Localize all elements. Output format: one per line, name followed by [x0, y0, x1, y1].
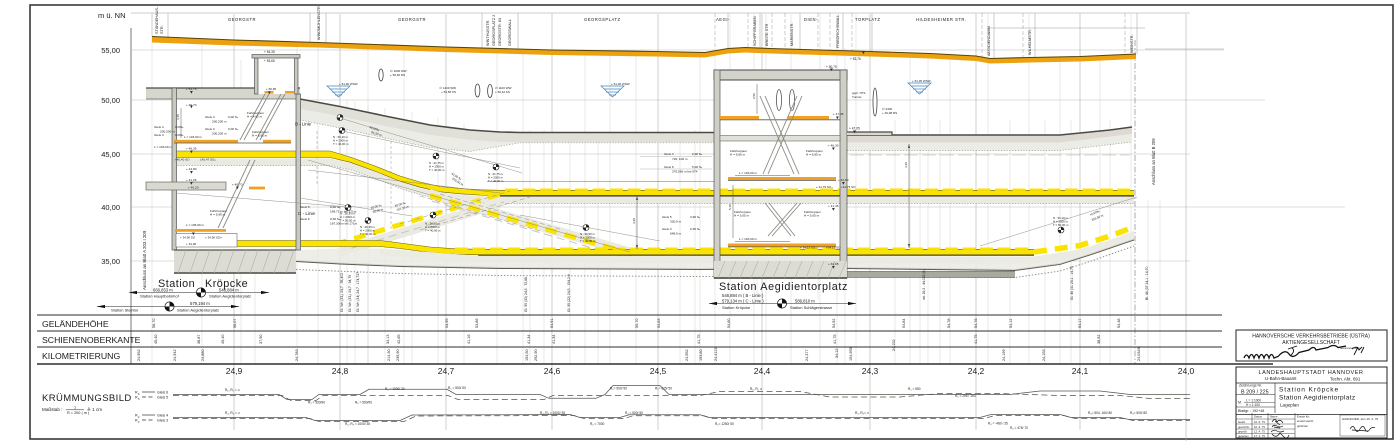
svg-text:mt. 26,2 . 44,022 (6): mt. 26,2 . 44,022 (6): [922, 269, 926, 300]
svg-text:geprüft: geprüft: [1238, 430, 1247, 434]
svg-text:+ 46,30: + 46,30: [828, 144, 839, 148]
svg-text:10. 6. 75: 10. 6. 75: [1254, 425, 1265, 429]
svg-text:R₄ = -480 / 35: R₄ = -480 / 35: [988, 422, 1008, 426]
svg-text:Techn. Abt. 691: Techn. Abt. 691: [1330, 377, 1361, 382]
svg-text:24,199: 24,199: [1002, 349, 1006, 361]
svg-text:Gleis 6: Gleis 6: [664, 165, 674, 169]
svg-text:Zeichnungs Nr.: Zeichnungs Nr.: [1239, 384, 1262, 388]
svg-text:45,00: 45,00: [101, 150, 120, 159]
svg-text:R₄, R₃ = 1000/ 35: R₄, R₃ = 1000/ 35: [345, 422, 370, 426]
svg-text:24,942: 24,942: [173, 349, 177, 361]
svg-text:24,9: 24,9: [226, 366, 243, 376]
svg-text:Gleis 3: Gleis 3: [662, 227, 672, 231]
svg-text:R₅= 1250/ 50: R₅= 1250/ 50: [715, 422, 734, 426]
svg-text:Station Kröpcke: Station Kröpcke: [722, 305, 751, 310]
svg-text:35,00: 35,00: [101, 257, 120, 266]
svg-text:R₆ = 295 / 153: R₆ = 295 / 153: [955, 394, 976, 398]
svg-text:Gleis 5: Gleis 5: [157, 396, 168, 400]
svg-text:Lageplan: Lageplan: [1280, 403, 1299, 408]
svg-text:WILHELMSTR.: WILHELMSTR.: [1028, 29, 1032, 55]
svg-text:R₅ = 500/90: R₅ = 500/90: [308, 401, 325, 405]
svg-text:24,153: 24,153: [1042, 349, 1046, 361]
svg-text:4,38: 4,38: [632, 218, 636, 224]
svg-text:SCHIFFGRABEN: SCHIFFGRABEN: [753, 16, 757, 46]
svg-text:T = 40,00 m: T = 40,00 m: [488, 179, 504, 183]
svg-text:R₆ = 500/90: R₆ = 500/90: [355, 401, 372, 405]
svg-text:ersetzt durch:: ersetzt durch:: [1297, 419, 1314, 423]
svg-text:Gl. 95 (22) 24,5 . 154,2.9: Gl. 95 (22) 24,5 . 154,2.9: [567, 274, 571, 312]
svg-text:24,377: 24,377: [805, 349, 809, 361]
svg-text:+ 47,45: + 47,45: [833, 112, 844, 116]
svg-text:0,00 ‰: 0,00 ‰: [228, 127, 239, 131]
svg-text:Station Hauptbahnhof: Station Hauptbahnhof: [140, 294, 180, 299]
svg-text:56,07: 56,07: [233, 318, 237, 328]
svg-text:24,2: 24,2: [968, 366, 985, 376]
svg-text:Gleis 6: Gleis 6: [300, 217, 310, 221]
svg-text:Datum: Datum: [1254, 415, 1263, 419]
svg-text:24,152: 24,152: [892, 339, 896, 351]
svg-text:Gleis 6: Gleis 6: [157, 391, 168, 395]
svg-text:0,35 ‰: 0,35 ‰: [690, 227, 701, 231]
svg-text:+45,40 SO: +45,40 SO: [175, 158, 190, 162]
svg-text:Gl. Wn (34) 24,7 . 174,737: Gl. Wn (34) 24,7 . 174,737: [356, 272, 360, 312]
svg-text:R₃= 500/ 80: R₃= 500/ 80: [1130, 411, 1147, 415]
svg-text:5,00 ‰: 5,00 ‰: [692, 165, 703, 169]
svg-text:Ersatz für:: Ersatz für:: [1297, 415, 1310, 419]
svg-text:+ 53,76: + 53,76: [850, 57, 861, 61]
svg-text:+ 34,05: + 34,05: [828, 262, 839, 266]
svg-text:+ 47,05: + 47,05: [849, 127, 860, 131]
svg-text:Station Steintor: Station Steintor: [111, 308, 139, 313]
svg-text:54,60: 54,60: [727, 318, 731, 328]
svg-text:Blattgr. : 192+48: Blattgr. : 192+48: [1238, 409, 1264, 413]
svg-text:276,566 m bis 974: 276,566 m bis 974: [672, 170, 698, 174]
svg-text:45,40: 45,40: [221, 334, 225, 344]
svg-text:+ 41,45: + 41,45: [828, 204, 839, 208]
svg-text:R₆= 500/ 50: R₆= 500/ 50: [610, 387, 627, 391]
svg-text:KRÜMMUNGSBILD: KRÜMMUNGSBILD: [42, 393, 132, 404]
svg-text:726, 106 m: 726, 106 m: [672, 157, 688, 161]
svg-text:53,95: 53,95: [445, 318, 449, 328]
svg-text:548,884 m: 548,884 m: [219, 288, 239, 293]
svg-text:54,12: 54,12: [1009, 318, 1013, 328]
svg-text:54,48: 54,48: [1117, 318, 1121, 328]
svg-text:GEORGSPLATZ: GEORGSPLATZ: [584, 17, 621, 22]
svg-text:Station Kröpcke: Station Kröpcke: [1279, 387, 1339, 394]
svg-text:R₄, R₃ = 1000/ 35: R₄, R₃ = 1000/ 35: [540, 411, 565, 415]
svg-text:gezeichn.: gezeichn.: [1238, 425, 1250, 429]
svg-text:41,34: 41,34: [527, 334, 531, 344]
svg-text:Hannover, den: Hannover, den: [1340, 346, 1360, 350]
svg-text:Station Schlägerstrasse: Station Schlägerstrasse: [790, 305, 833, 310]
svg-text:+34,12 SO: +34,12 SO: [826, 246, 841, 250]
svg-text:GEORGSWALL: GEORGSWALL: [508, 19, 512, 46]
svg-text:Bl. 44 (37 24,1 . 14,70: Bl. 44 (37 24,1 . 14,70: [1145, 267, 1149, 300]
svg-text:Station Aegidientorplatz: Station Aegidientorplatz: [209, 294, 251, 299]
svg-text:0,00 ‰: 0,00 ‰: [228, 115, 239, 119]
svg-text:+ 50,95: + 50,95: [266, 87, 276, 91]
svg-text:34,13: 34,13: [386, 334, 390, 344]
svg-text:24,8: 24,8: [332, 366, 349, 376]
svg-text:R₃ = 475/ 70: R₃ = 475/ 70: [1010, 426, 1028, 430]
svg-text:L = 103,00 m: L = 103,00 m: [739, 237, 757, 241]
svg-text:579,134 m ( C - Linie ): 579,134 m ( C - Linie ): [722, 299, 764, 304]
svg-text:Gleis 5: Gleis 5: [662, 215, 672, 219]
svg-text:Station Aegidientorplatz: Station Aegidientorplatz: [177, 308, 219, 313]
svg-text:45,40: 45,40: [154, 334, 158, 344]
svg-text:Station Aegidientorplatz: Station Aegidientorplatz: [1279, 395, 1355, 402]
svg-text:L = 103,00 m: L = 103,00 m: [184, 135, 202, 139]
svg-text:Gleis 4: Gleis 4: [205, 115, 215, 119]
svg-text:gesehen: gesehen: [1238, 434, 1249, 438]
svg-text:154,955: 154,955: [849, 347, 853, 361]
svg-text:R₄, R₃= ∞: R₄, R₃= ∞: [855, 411, 870, 415]
svg-text:Gleis 4: Gleis 4: [664, 152, 674, 156]
svg-text:24,5: 24,5: [650, 366, 667, 376]
svg-text:648,9 m: 648,9 m: [670, 232, 682, 236]
svg-text:R₄= 504, 160/ 80: R₄= 504, 160/ 80: [1088, 411, 1112, 415]
svg-text:+ 46,08 RS: + 46,08 RS: [882, 111, 897, 115]
svg-text:24,7: 24,7: [438, 366, 455, 376]
svg-text:Gleis 5: Gleis 5: [300, 205, 310, 209]
svg-text:R₆, R₅ = ∞: R₆, R₅ = ∞: [225, 388, 241, 392]
svg-text:R₅= 625/ 50: R₅= 625/ 50: [655, 387, 672, 391]
svg-text:T = 40,00 m: T = 40,00 m: [580, 239, 596, 243]
svg-text:24,3: 24,3: [862, 366, 879, 376]
svg-text:24,1: 24,1: [1072, 366, 1089, 376]
svg-text:54,92: 54,92: [832, 318, 836, 328]
svg-text:Gl. 95 (33) 24,5 . 72,88: Gl. 95 (33) 24,5 . 72,88: [524, 277, 528, 312]
svg-text:Tunnel: Tunnel: [852, 95, 862, 99]
svg-text:54,84: 54,84: [902, 318, 906, 328]
svg-text:41,75: 41,75: [833, 334, 837, 344]
svg-text:WEINSTR.: WEINSTR.: [1130, 34, 1134, 53]
svg-text:HANNOVERSCHE VERKEHRSBETRIEBE: HANNOVERSCHE VERKEHRSBETRIEBE (ÜSTRA): [1252, 333, 1370, 340]
svg-text:12. 4. 75: 12. 4. 75: [1254, 430, 1265, 434]
svg-text:54,91: 54,91: [550, 318, 554, 328]
svg-text:2,00 ‰: 2,00 ‰: [692, 152, 703, 156]
svg-text:GELÄNDEHÖHE: GELÄNDEHÖHE: [42, 319, 109, 329]
svg-text:54,63: 54,63: [657, 318, 661, 328]
svg-text:589,810 m: 589,810 m: [795, 299, 815, 304]
svg-text:+ 51,35 WSW: + 51,35 WSW: [912, 79, 931, 83]
svg-text:0,00‰: 0,00‰: [175, 125, 183, 129]
svg-text:bearb.: bearb.: [1238, 420, 1246, 424]
svg-text:H = 4,62 m: H = 4,62 m: [247, 115, 263, 119]
svg-text:Anschluss an Blatt A 203 I 209: Anschluss an Blatt A 203 I 209: [142, 230, 147, 290]
svg-text:579,194 m: 579,194 m: [190, 301, 210, 306]
svg-text:154,50: 154,50: [525, 349, 529, 361]
svg-text:+ 50,70: + 50,70: [826, 65, 837, 69]
svg-text:GEORGSTR: GEORGSTR: [228, 17, 256, 22]
svg-text:R₄, R₃ = ∞: R₄, R₃ = ∞: [225, 411, 241, 415]
svg-text:200,200 m: 200,200 m: [212, 120, 227, 124]
svg-text:FRIEDRICHSWALL: FRIEDRICHSWALL: [836, 15, 840, 48]
svg-text:GEORGSPLATZ 2: GEORGSPLATZ 2: [492, 15, 496, 46]
svg-text:+ 34,13 SO₄: + 34,13 SO₄: [800, 246, 817, 250]
svg-text:Gleis 3: Gleis 3: [154, 133, 164, 137]
svg-text:40,00: 40,00: [101, 203, 120, 212]
svg-text:+ 53,65: + 53,65: [264, 59, 275, 63]
svg-text:STÄNDEHAUS-: STÄNDEHAUS-: [155, 6, 159, 34]
svg-text:T = 40,30 m: T = 40,30 m: [360, 232, 376, 236]
svg-text:41,75: 41,75: [697, 334, 701, 344]
svg-text:U-Bahn-Bauamt: U-Bahn-Bauamt: [1265, 376, 1297, 381]
svg-text:H = 6,95 m: H = 6,95 m: [252, 134, 268, 138]
svg-text:1: 1: [74, 406, 76, 410]
svg-text:Station Aegidientorplatz: Station Aegidientorplatz: [719, 281, 848, 293]
svg-text:GEORGSTR: GEORGSTR: [398, 17, 426, 22]
svg-text:54,17: 54,17: [1078, 318, 1082, 328]
svg-text:+ 34,90 SO×: + 34,90 SO×: [205, 236, 222, 240]
svg-text:STR.: STR.: [160, 25, 164, 34]
svg-text:10. 6. 75: 10. 6. 75: [1254, 420, 1265, 424]
svg-text:4,40: 4,40: [904, 162, 908, 168]
svg-text:WINTHUSSTR.: WINTHUSSTR.: [486, 20, 490, 46]
svg-text:55,70: 55,70: [635, 318, 639, 328]
svg-text:R₆, R₅ ∞: R₆, R₅ ∞: [750, 387, 763, 391]
svg-text:L = 105,00 m: L = 105,00 m: [186, 223, 204, 227]
svg-text:H = 5,05 m: H = 5,05 m: [734, 214, 750, 218]
svg-text:+41,75 SO: +41,75 SO: [841, 185, 856, 189]
svg-text:C - Linie: C - Linie: [298, 211, 316, 216]
svg-text:0,00‰: 0,00‰: [175, 133, 183, 137]
svg-text:≙ 1 cm: ≙ 1 cm: [87, 406, 102, 412]
svg-text:214,30: 214,30: [387, 349, 391, 361]
svg-text:R₄ = 500/ 50: R₄ = 500/ 50: [625, 411, 643, 415]
svg-text:239,90: 239,90: [396, 349, 400, 361]
svg-text:17. 4. 75: 17. 4. 75: [1254, 434, 1265, 438]
svg-text:55,00: 55,00: [101, 46, 120, 55]
svg-text:AEGI-: AEGI-: [716, 17, 730, 22]
svg-text:H = 5,96 m: H = 5,96 m: [210, 213, 226, 217]
svg-text:330,9 m: 330,9 m: [670, 220, 682, 224]
svg-text:41,75: 41,75: [974, 334, 978, 344]
svg-text:292,90: 292,90: [534, 349, 538, 361]
svg-text:+ 51,75: + 51,75: [186, 87, 197, 91]
svg-text:H = 5,05 m: H = 5,05 m: [804, 214, 820, 218]
svg-text:m ü. NN: m ü. NN: [98, 11, 126, 20]
svg-text:GEORGSTR. 63: GEORGSTR. 63: [498, 18, 502, 46]
svg-text:R₆ = 1000/ 20: R₆ = 1000/ 20: [385, 387, 405, 391]
svg-text:42,65: 42,65: [397, 334, 401, 344]
svg-text:HANNOVER, den 16. 2. 76: HANNOVER, den 16. 2. 76: [1342, 417, 1379, 421]
svg-text:T = 50,00 m: T = 50,00 m: [340, 219, 356, 223]
svg-text:38,92: 38,92: [1097, 334, 1101, 344]
svg-text:BREITE STR: BREITE STR: [765, 23, 769, 46]
svg-text:41,16: 41,16: [467, 334, 471, 344]
svg-text:3,90 ‰: 3,90 ‰: [690, 215, 701, 219]
svg-text:34,12: 34,12: [835, 348, 839, 358]
svg-text:Gl. Wn (33,) 24,7 . 94,75: Gl. Wn (33,) 24,7 . 94,75: [348, 275, 352, 312]
svg-text:T = 40,00 m: T = 40,00 m: [333, 142, 349, 146]
svg-text:+ 46,35: + 46,35: [186, 147, 197, 151]
svg-text:24,6: 24,6: [544, 366, 561, 376]
svg-text:WINDMÜHLENSTR: WINDMÜHLENSTR: [317, 6, 321, 40]
svg-text:Gl. Wn (33,) 24,7 . 95,402: Gl. Wn (33,) 24,7 . 95,402: [340, 273, 344, 312]
svg-text:+ 42,60: + 42,60: [838, 178, 849, 182]
svg-text:DIEN-: DIEN-: [804, 17, 818, 22]
svg-text:2,50: 2,50: [752, 93, 756, 99]
svg-text:+ 34,38: + 34,38: [186, 242, 196, 246]
svg-text:41,34: 41,34: [552, 334, 556, 344]
svg-text:H = 6,85 m: H = 6,85 m: [730, 153, 746, 157]
svg-text:TORPLATZ: TORPLATZ: [855, 17, 880, 22]
svg-text:L = 103,00 m: L = 103,00 m: [154, 145, 172, 149]
svg-text:H = 1:100: H = 1:100: [1246, 403, 1260, 407]
svg-text:Anschluss an Blatt B 209: Anschluss an Blatt B 209: [1151, 138, 1156, 185]
svg-text:54,78: 54,78: [947, 318, 951, 328]
svg-text:53,86: 53,86: [475, 318, 479, 328]
svg-text:548,884 m ( B - Linie ): 548,884 m ( B - Linie ): [722, 293, 764, 298]
svg-text:SCHIENENOBERKANTE: SCHIENENOBERKANTE: [42, 335, 141, 345]
svg-text:24,0: 24,0: [1178, 366, 1195, 376]
svg-text:gehörten: gehörten: [1297, 424, 1308, 428]
svg-text:+ 51,90 WSW: + 51,90 WSW: [339, 82, 358, 86]
svg-text:H = 6,85 m: H = 6,85 m: [806, 153, 822, 157]
svg-text:T = 40,00 m: T = 40,00 m: [425, 229, 441, 233]
svg-text:+ 54,35: + 54,35: [264, 50, 275, 54]
svg-text:+ 51,30 WSW: + 51,30 WSW: [611, 82, 630, 86]
svg-text:200,200 m: 200,200 m: [160, 130, 175, 134]
svg-text:Gl. 46 (31 24,1 . 14,75: Gl. 46 (31 24,1 . 14,75: [1070, 266, 1074, 300]
svg-text:+ 34,90 SO: + 34,90 SO: [180, 236, 196, 240]
svg-text:24,952: 24,952: [137, 349, 141, 361]
svg-text:T = 40,00 m: T = 40,00 m: [429, 168, 445, 172]
svg-text:+ 50,56 KS: + 50,56 KS: [441, 90, 456, 94]
svg-text:R₅ = 500/ 50: R₅ = 500/ 50: [448, 386, 466, 390]
svg-text:24,783: 24,783: [295, 349, 299, 361]
svg-text:KILOMETRIERUNG: KILOMETRIERUNG: [42, 351, 120, 361]
svg-text:R₅ = 550: R₅ = 550: [908, 387, 921, 391]
svg-text:24,880: 24,880: [201, 349, 205, 361]
svg-text:+ 41,79 SO₄: + 41,79 SO₄: [816, 185, 833, 189]
svg-text:200,200 m: 200,200 m: [212, 132, 227, 136]
svg-text:38,87: 38,87: [197, 334, 201, 344]
svg-text:AKTIENGESELLSCHAFT: AKTIENGESELLSCHAFT: [1282, 340, 1340, 346]
svg-text:Name: Name: [1270, 415, 1278, 419]
svg-text:56,70: 56,70: [152, 318, 156, 328]
svg-text:+ 44,80: + 44,80: [186, 167, 197, 171]
svg-text:24,552: 24,552: [685, 349, 689, 361]
svg-text:24,4113: 24,4113: [714, 348, 718, 361]
svg-text:37,50: 37,50: [259, 334, 263, 344]
svg-text:Gleis 3: Gleis 3: [205, 127, 215, 131]
svg-text:Maßstab :: Maßstab :: [42, 407, 62, 412]
svg-text:+ 40,20: + 40,20: [188, 186, 199, 190]
svg-text:+ 41,06: + 41,06: [186, 178, 197, 182]
svg-text:MARIENSTR.: MARIENSTR.: [790, 23, 794, 46]
svg-text:50,00: 50,00: [101, 96, 120, 105]
svg-text:Gleis 4: Gleis 4: [154, 125, 164, 129]
svg-text:T = 50,30 m: T = 50,30 m: [1053, 223, 1069, 227]
svg-text:54,76: 54,76: [974, 318, 978, 328]
svg-text:L45,47 SO₄: L45,47 SO₄: [200, 158, 216, 162]
svg-text:3,45: 3,45: [176, 114, 180, 120]
svg-text:AEGIDIENDAMM: AEGIDIENDAMM: [987, 26, 991, 56]
svg-text:R₃ = 7000: R₃ = 7000: [590, 422, 605, 426]
svg-text:B - Linie: B - Linie: [295, 122, 312, 127]
svg-text:5,10: 5,10: [728, 204, 732, 210]
svg-text:M.: M.: [1238, 401, 1242, 405]
svg-text:HILDESHEIMER STR.: HILDESHEIMER STR.: [916, 17, 967, 22]
svg-text:Gleis 3: Gleis 3: [157, 419, 168, 423]
svg-text:24,0345: 24,0345: [1137, 347, 1141, 361]
svg-text:+ 50,46 RS: + 50,46 RS: [390, 73, 405, 77]
svg-text:24,4: 24,4: [754, 366, 771, 376]
svg-text:666,653 m: 666,653 m: [153, 288, 173, 293]
svg-text:Gleis 4: Gleis 4: [157, 414, 168, 418]
svg-text:+ 50,42 KS: + 50,42 KS: [495, 90, 510, 94]
svg-text:L = 103,00 m: L = 103,00 m: [739, 171, 757, 175]
svg-text:193,80: 193,80: [699, 349, 703, 361]
